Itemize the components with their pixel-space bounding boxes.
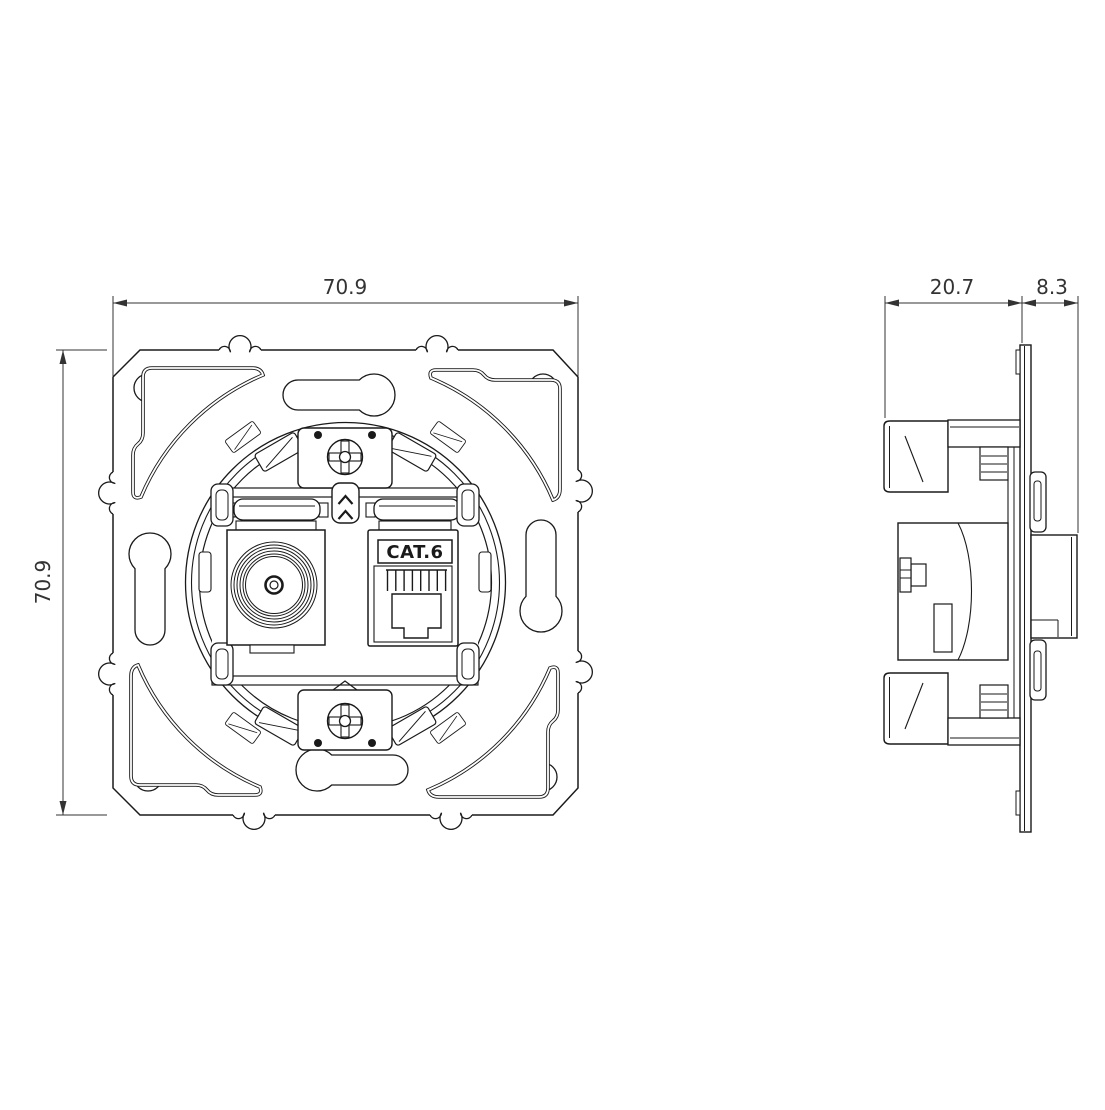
side-tab-left bbox=[199, 552, 211, 592]
orientation-chevron-icon bbox=[332, 483, 359, 523]
claw-bottom-side bbox=[884, 673, 1020, 745]
corner-clip bbox=[211, 643, 233, 685]
mounting-claw-screw-bottom bbox=[298, 681, 392, 750]
mounting-slot bbox=[296, 749, 408, 791]
screw-side bbox=[911, 564, 926, 586]
dimension-label: 70.9 bbox=[323, 275, 368, 299]
cat6-label: CAT.6 bbox=[386, 542, 443, 563]
front-latch-bottom bbox=[1030, 640, 1046, 700]
side-tab-right bbox=[479, 552, 491, 592]
coax-connector bbox=[227, 521, 325, 653]
arrow-right-icon bbox=[1008, 300, 1022, 307]
housing-side bbox=[898, 523, 1008, 660]
drawing-canvas: CAT.6 bbox=[0, 0, 1105, 1105]
module-flange-right bbox=[366, 499, 468, 520]
side-view bbox=[884, 345, 1077, 832]
coax-barrel-side bbox=[1031, 535, 1077, 638]
corner-clip bbox=[457, 484, 479, 526]
module-flange-left bbox=[226, 499, 328, 520]
housing-foot bbox=[934, 604, 952, 652]
mounting-slot bbox=[283, 374, 395, 416]
dimension-label: 20.7 bbox=[930, 275, 975, 299]
height-dimension: 70.9 bbox=[31, 350, 107, 815]
rj45-jack: CAT.6 bbox=[368, 521, 458, 646]
mounting-plate-side bbox=[1016, 345, 1031, 832]
arrow-down-icon bbox=[60, 801, 67, 815]
arrow-right-icon bbox=[1064, 300, 1078, 307]
corner-clip bbox=[211, 484, 233, 526]
arrow-right-icon bbox=[564, 300, 578, 307]
mounting-slot bbox=[520, 520, 562, 632]
corner-clip bbox=[457, 643, 479, 685]
front-latch-top bbox=[1030, 472, 1046, 532]
dimension-label: 70.9 bbox=[31, 560, 55, 605]
claw-top-side bbox=[884, 420, 1020, 492]
front-view: CAT.6 bbox=[99, 336, 593, 830]
arrow-left-icon bbox=[885, 300, 899, 307]
arrow-left-icon bbox=[1022, 300, 1036, 307]
arrow-left-icon bbox=[113, 300, 127, 307]
dimension-label: 8.3 bbox=[1036, 275, 1068, 299]
technical-drawing: CAT.6 bbox=[0, 0, 1105, 1105]
arrow-up-icon bbox=[60, 350, 67, 364]
mounting-slot bbox=[129, 533, 171, 645]
